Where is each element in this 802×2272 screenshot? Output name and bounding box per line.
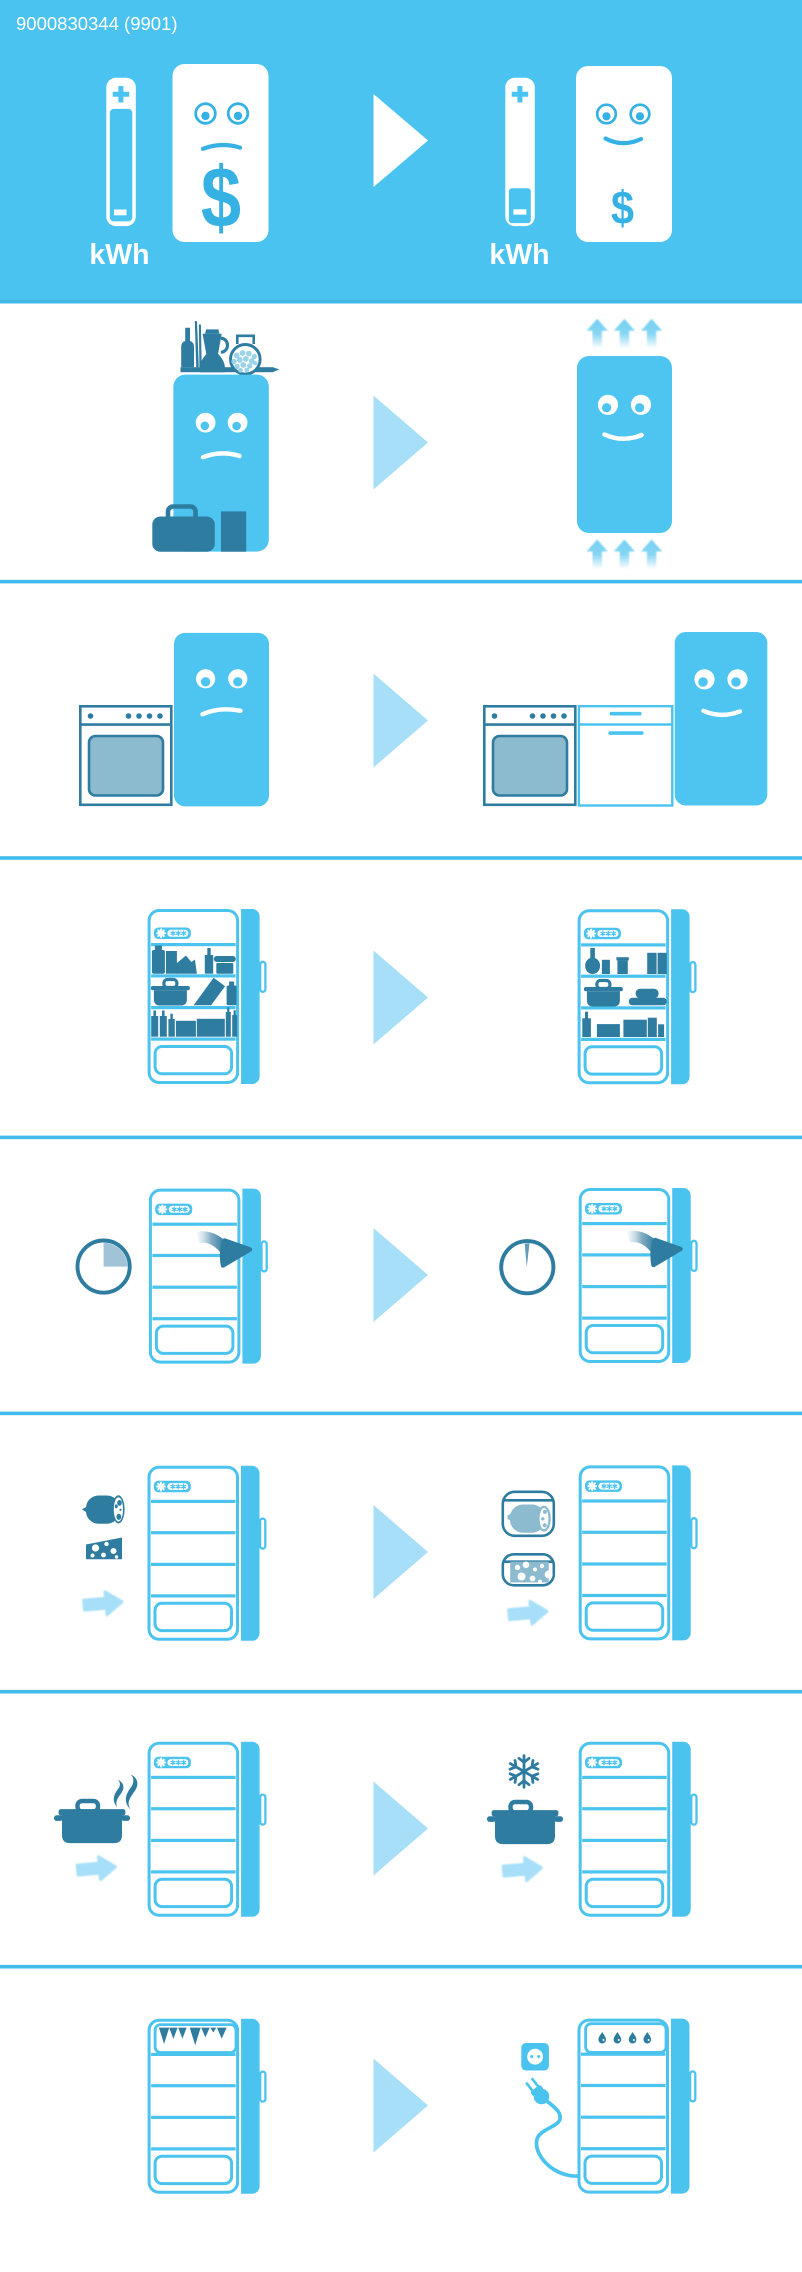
svg-text:kWh: kWh: [489, 239, 549, 271]
svg-text:$: $: [201, 149, 241, 245]
svg-text:9000830344 (9901): 9000830344 (9901): [16, 13, 178, 34]
svg-text:kWh: kWh: [89, 239, 149, 271]
svg-text:$: $: [611, 183, 634, 235]
